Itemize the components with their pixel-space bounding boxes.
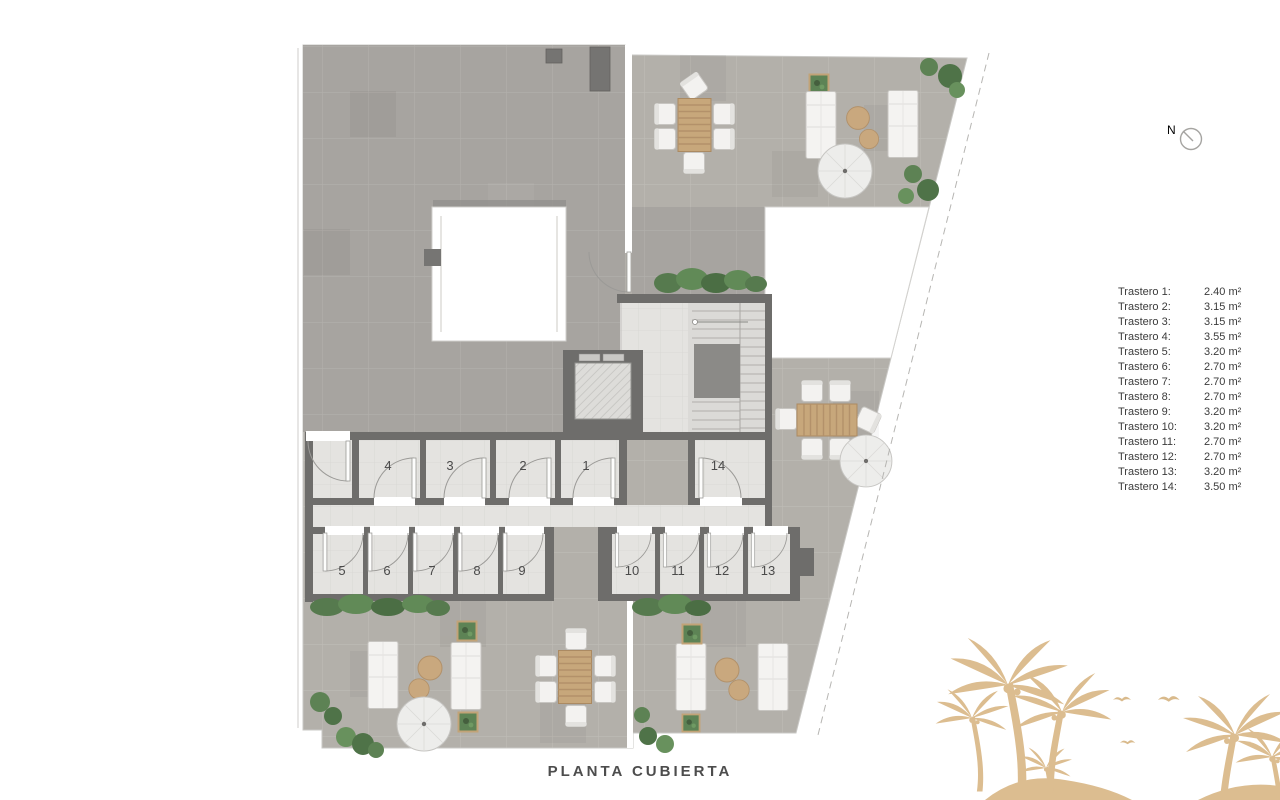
legend-row: Trastero 5:3.20 m² bbox=[1118, 345, 1241, 360]
legend-label: Trastero 2: bbox=[1118, 300, 1204, 315]
side-table bbox=[847, 107, 870, 130]
legend-label: Trastero 4: bbox=[1118, 330, 1204, 345]
planter bbox=[682, 714, 699, 731]
legend-value: 2.70 m² bbox=[1204, 375, 1241, 390]
legend-label: Trastero 1: bbox=[1118, 285, 1204, 300]
legend-row: Trastero 1:2.40 m² bbox=[1118, 285, 1241, 300]
legend-label: Trastero 3: bbox=[1118, 315, 1204, 330]
room-12-label: 12 bbox=[715, 563, 729, 578]
room-4-label: 4 bbox=[384, 458, 391, 473]
legend-label: Trastero 14: bbox=[1118, 480, 1204, 495]
legend-label: Trastero 12: bbox=[1118, 450, 1204, 465]
legend-row: Trastero 14:3.50 m² bbox=[1118, 480, 1241, 495]
plan-title: PLANTA CUBIERTA bbox=[0, 763, 1280, 780]
legend-row: Trastero 6:2.70 m² bbox=[1118, 360, 1241, 375]
legend-row: Trastero 12:2.70 m² bbox=[1118, 450, 1241, 465]
room-10-label: 10 bbox=[625, 563, 639, 578]
legend-label: Trastero 5: bbox=[1118, 345, 1204, 360]
void-opening bbox=[765, 207, 929, 358]
room-13-label: 13 bbox=[761, 563, 775, 578]
room-1-label: 1 bbox=[582, 458, 589, 473]
room-6-label: 6 bbox=[383, 563, 390, 578]
side-table bbox=[859, 129, 878, 148]
planter bbox=[810, 75, 829, 94]
side-table bbox=[729, 680, 749, 700]
skylight-opening bbox=[424, 200, 566, 341]
legend-row: Trastero 9:3.20 m² bbox=[1118, 405, 1241, 420]
legend-row: Trastero 10:3.20 m² bbox=[1118, 420, 1241, 435]
sun-lounger bbox=[888, 91, 918, 158]
floor-plan-page: 1 2 3 4 5 6 7 8 9 10 11 12 13 14 bbox=[0, 0, 1280, 800]
legend-value: 3.20 m² bbox=[1204, 420, 1241, 435]
legend-row: Trastero 2:3.15 m² bbox=[1118, 300, 1241, 315]
planter bbox=[683, 625, 702, 644]
room-2-label: 2 bbox=[519, 458, 526, 473]
legend-value: 2.70 m² bbox=[1204, 390, 1241, 405]
side-table bbox=[418, 656, 442, 680]
staircase bbox=[688, 296, 766, 432]
parasol bbox=[840, 435, 892, 487]
legend-label: Trastero 6: bbox=[1118, 360, 1204, 375]
sun-lounger bbox=[758, 644, 788, 711]
legend-row: Trastero 3:3.15 m² bbox=[1118, 315, 1241, 330]
legend-label: Trastero 11: bbox=[1118, 435, 1204, 450]
parasol bbox=[818, 144, 872, 198]
legend-value: 2.70 m² bbox=[1204, 360, 1241, 375]
legend-value: 3.20 m² bbox=[1204, 345, 1241, 360]
legend-value: 3.15 m² bbox=[1204, 300, 1241, 315]
legend-row: Trastero 13:3.20 m² bbox=[1118, 465, 1241, 480]
room-8-label: 8 bbox=[473, 563, 480, 578]
room-11-label: 11 bbox=[671, 563, 685, 578]
elevator bbox=[563, 350, 643, 432]
sun-lounger bbox=[676, 644, 706, 711]
room-3-label: 3 bbox=[446, 458, 453, 473]
north-indicator: N bbox=[1167, 123, 1202, 150]
legend: Trastero 1:2.40 m² Trastero 2:3.15 m² Tr… bbox=[1118, 285, 1241, 495]
north-label: N bbox=[1167, 123, 1176, 137]
birds bbox=[1113, 696, 1180, 744]
floor-plan-svg: 1 2 3 4 5 6 7 8 9 10 11 12 13 14 bbox=[0, 0, 1280, 800]
room-7-label: 7 bbox=[428, 563, 435, 578]
legend-row: Trastero 8:2.70 m² bbox=[1118, 390, 1241, 405]
legend-value: 3.20 m² bbox=[1204, 465, 1241, 480]
legend-label: Trastero 10: bbox=[1118, 420, 1204, 435]
legend-value: 2.70 m² bbox=[1204, 435, 1241, 450]
legend-label: Trastero 8: bbox=[1118, 390, 1204, 405]
legend-value: 3.55 m² bbox=[1204, 330, 1241, 345]
planter bbox=[458, 622, 477, 641]
room-5-label: 5 bbox=[338, 563, 345, 578]
sun-lounger bbox=[368, 642, 398, 709]
legend-value: 3.50 m² bbox=[1204, 480, 1241, 495]
legend-row: Trastero 4:3.55 m² bbox=[1118, 330, 1241, 345]
legend-label: Trastero 7: bbox=[1118, 375, 1204, 390]
legend-value: 3.15 m² bbox=[1204, 315, 1241, 330]
legend-row: Trastero 7:2.70 m² bbox=[1118, 375, 1241, 390]
legend-label: Trastero 13: bbox=[1118, 465, 1204, 480]
room-14-label: 14 bbox=[711, 458, 725, 473]
room-9-label: 9 bbox=[518, 563, 525, 578]
sun-lounger bbox=[451, 643, 481, 710]
side-table bbox=[715, 658, 739, 682]
legend-row: Trastero 11:2.70 m² bbox=[1118, 435, 1241, 450]
stair-void bbox=[694, 344, 740, 398]
planter bbox=[459, 713, 478, 732]
legend-value: 2.70 m² bbox=[1204, 450, 1241, 465]
legend-value: 3.20 m² bbox=[1204, 405, 1241, 420]
side-table bbox=[409, 679, 429, 699]
storage-corridor bbox=[313, 505, 765, 527]
legend-value: 2.40 m² bbox=[1204, 285, 1241, 300]
parasol bbox=[397, 697, 451, 751]
legend-label: Trastero 9: bbox=[1118, 405, 1204, 420]
